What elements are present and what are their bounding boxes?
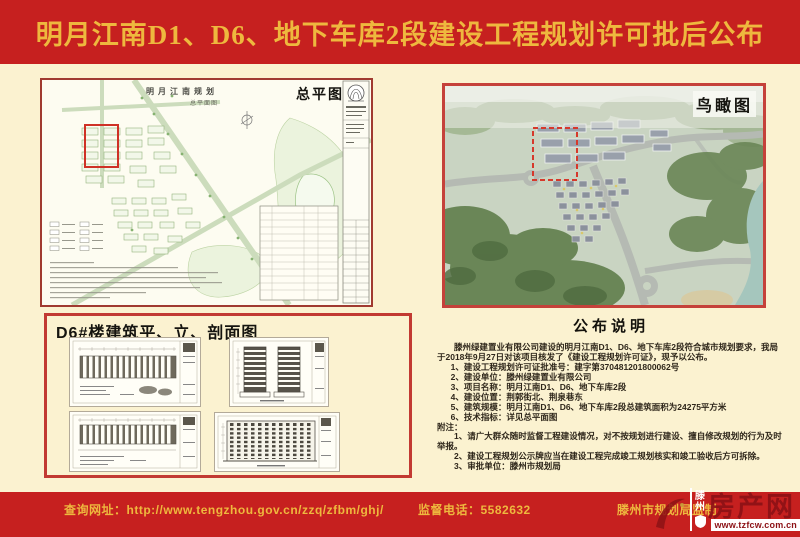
poster-title: 明月江南D1、D6、地下车库2段建设工程规划许可批后公布: [36, 13, 765, 52]
announcement-title: 公布说明: [437, 315, 785, 336]
shield-icon: [695, 515, 706, 528]
site-plan-panel: 明月江南规划 总平面图 总平图: [40, 78, 373, 307]
birdseye-rendering: [445, 86, 763, 305]
watermark-site-name: 滕州: [695, 491, 706, 513]
announcement-item: 6、技术指标：详见总平面图: [451, 413, 785, 423]
d6-floor-plan-sheet-2: [69, 411, 201, 472]
footer-query-url: 查询网址：http://www.tengzhou.gov.cn/zzq/zfbm…: [64, 501, 384, 518]
d6-floor-plan-sheet-1: [69, 337, 201, 407]
announcement-intro: 滕州绿建置业有限公司建设的明月江南D1、D6、地下车库2段符合城市规划要求，我局…: [437, 343, 785, 363]
birdseye-panel: 鸟瞰图: [442, 83, 766, 308]
announcement-section: 公布说明 滕州绿建置业有限公司建设的明月江南D1、D6、地下车库2段符合城市规划…: [437, 315, 785, 472]
header-banner: 明月江南D1、D6、地下车库2段建设工程规划许可批后公布: [0, 0, 800, 64]
planning-announcement-poster: 明月江南D1、D6、地下车库2段建设工程规划许可批后公布: [0, 0, 800, 537]
announcement-note: 1、请广大群众随时监督工程建设情况，对不按规划进行建设、擅自修改规划的行为及时举…: [437, 432, 785, 452]
footer-supervision-phone: 监督电话：5582632: [418, 501, 531, 518]
watermark-logo: 滕州 房产网 www.tzfcw.com.cn: [650, 484, 800, 537]
watermark-swoosh-icon: [652, 489, 688, 531]
site-plan-drawing-subtitle: 总平面图: [190, 98, 218, 107]
birdseye-label: 鸟瞰图: [693, 91, 756, 117]
watermark-divider: [690, 488, 692, 531]
d6-elevation-sheet: [214, 412, 340, 472]
d6-section-sheet: [229, 337, 329, 407]
site-plan-drawing-title: 明月江南规划: [146, 86, 218, 97]
site-plan-label: 总平图: [296, 84, 344, 104]
announcement-note: 3、审批单位：滕州市规划局: [437, 462, 785, 472]
site-plan-drawing: [42, 80, 371, 305]
d6-drawings-panel: D6#楼建筑平、立、剖面图: [44, 313, 412, 478]
watermark-url: www.tzfcw.com.cn: [711, 519, 800, 531]
